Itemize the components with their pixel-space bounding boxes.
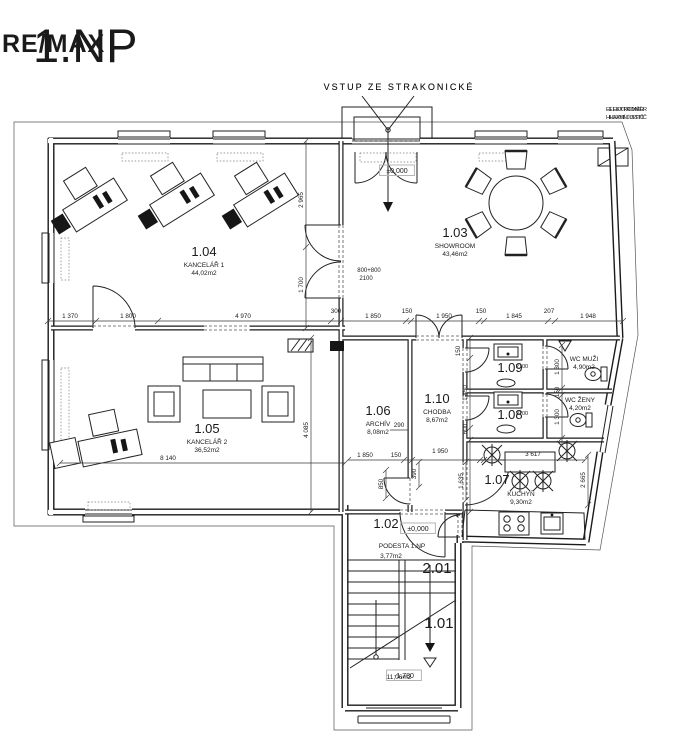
dimension: 207: [544, 308, 555, 315]
dimension: 150: [554, 386, 561, 397]
dimension: 290: [394, 422, 405, 429]
room-number: 1.02: [373, 516, 398, 531]
washbasin: [494, 344, 522, 360]
annotation: 800+800: [357, 268, 381, 274]
room-name: WC MUŽI: [570, 354, 599, 363]
annotation: ±0,000: [407, 526, 428, 533]
room-name: CHODBA: [423, 409, 451, 416]
dimension: 850: [378, 478, 385, 489]
room-name: WC ŽENY: [565, 395, 596, 404]
dimension: 600: [462, 423, 469, 434]
room-name: KANCELÁŘ 1: [184, 260, 225, 269]
room-area: 43,46m2: [442, 251, 468, 258]
level-triangle: [424, 658, 436, 667]
room-name: KUCHYŇ: [507, 489, 535, 498]
room-number: 1.07: [484, 472, 509, 487]
room-number: 1.01: [424, 615, 453, 632]
room-number: 1.05: [194, 421, 219, 436]
dimension: 4 085: [303, 422, 310, 438]
room-area: 44,02m2: [191, 270, 217, 277]
furniture: [36, 151, 607, 540]
dimension: 3 617: [525, 451, 541, 458]
room-area: 9,30m2: [510, 499, 532, 506]
annotation: ELEKTROMĚR: [609, 105, 647, 113]
room-name: PODESTA 1.NP: [379, 543, 425, 550]
room-number: 1.06: [365, 403, 390, 418]
stove: [499, 512, 529, 535]
dimension: 1 635: [458, 473, 465, 489]
dimension: 150: [402, 308, 413, 315]
annotation: 2100: [516, 364, 528, 370]
dimension: 2 665: [580, 472, 587, 488]
washbasin: [494, 392, 522, 408]
room-area: 36,52m2: [194, 447, 220, 454]
annotation: ±0,000: [386, 168, 407, 175]
dimension: 1 850: [365, 313, 381, 320]
annotation: 2100: [359, 276, 373, 282]
dimension: 390: [411, 468, 418, 479]
room-number: 1.10: [424, 391, 449, 406]
column-solid: [330, 341, 344, 351]
room-area: 8,08m2: [367, 429, 389, 436]
dimension: 2 965: [298, 192, 305, 208]
dimension: 1 300: [554, 359, 561, 375]
dimension: 1 450: [462, 385, 469, 401]
dimension: 1 300: [554, 409, 561, 425]
dimension: 1 700: [298, 277, 305, 293]
room-area: 4,90m2: [573, 364, 595, 371]
dimension: 8 140: [160, 455, 176, 462]
annotation: -1,780: [394, 673, 414, 680]
round-table: [489, 176, 543, 230]
desk: [123, 153, 214, 236]
entrance-arrow-head: [383, 202, 393, 212]
dimension: 1 950: [432, 448, 448, 455]
desk: [207, 153, 298, 236]
room-number: 1.03: [442, 225, 467, 240]
annotation: VSTUP ZE STRAKONICKÉ: [324, 82, 475, 92]
column-hatch-lines: [291, 339, 312, 351]
annotation: HLAVNÍ JISTIČ: [609, 114, 647, 121]
room-number: 1.04: [191, 244, 216, 259]
grey-annotations: VSTUP ZE STRAKONICKÉELEKTROMĚRHLAVNÍ JIS…: [324, 82, 647, 681]
toilet: [570, 413, 592, 427]
room-name: SHOWROOM: [435, 243, 475, 250]
room-area: 4,20m2: [569, 405, 591, 412]
dimension: 4 970: [235, 313, 251, 320]
annotation: 2100: [516, 411, 528, 417]
page-title: 1.NP: [33, 19, 138, 72]
room-area: 3,77m2: [380, 553, 402, 560]
stairs: [347, 560, 456, 723]
room-name: KANCELÁŘ 2: [187, 437, 228, 446]
dimension: 1 845: [506, 313, 522, 320]
dimension: 1 950: [436, 313, 452, 320]
dimension: 1 370: [62, 313, 78, 320]
dimension: 150: [476, 308, 487, 315]
sofa-set: [148, 357, 294, 422]
dimension: 300: [331, 308, 342, 315]
room-area: 8,67m2: [426, 417, 448, 424]
stair-arrow-head: [425, 643, 435, 652]
dimension: 1 948: [580, 313, 596, 320]
room-number: 2.01: [422, 560, 451, 577]
floor-plan-drawing: RE/MAX 1.NP: [0, 0, 684, 755]
dimension: 150: [391, 452, 402, 459]
kitchen-sink: [541, 513, 563, 534]
dimension: 1 800: [120, 313, 136, 320]
room-name: ARCHÍV: [366, 419, 391, 428]
dimension: 1 850: [357, 452, 373, 459]
floor-plan-page: RE/MAX 1.NP: [0, 0, 684, 755]
dimension: 150: [455, 345, 462, 356]
